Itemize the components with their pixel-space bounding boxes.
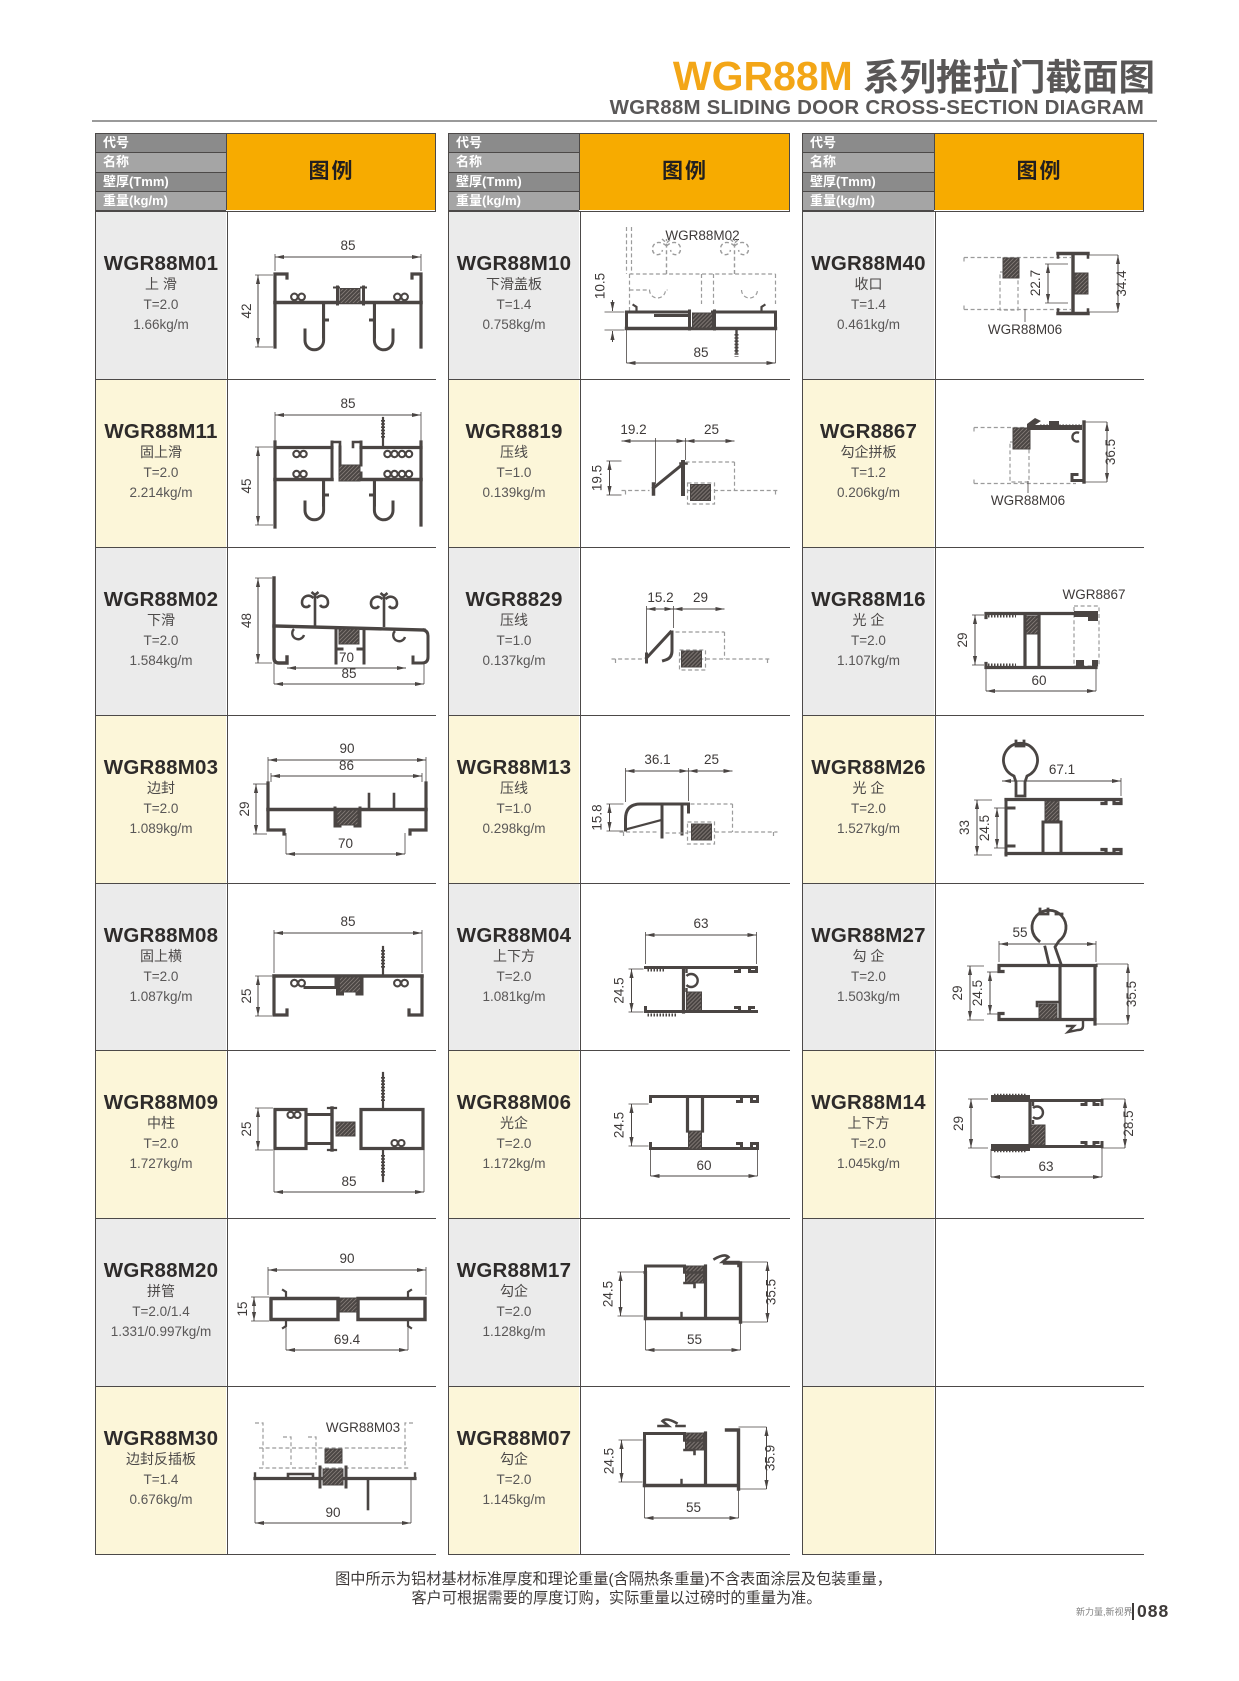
svg-text:15.8: 15.8: [590, 804, 605, 830]
svg-text:33: 33: [957, 820, 972, 835]
svg-text:WGR8867: WGR8867: [1062, 587, 1125, 602]
svg-text:48: 48: [239, 613, 254, 628]
svg-text:24.5: 24.5: [970, 979, 985, 1005]
svg-text:55: 55: [1012, 925, 1027, 940]
svg-text:90: 90: [325, 1505, 340, 1520]
svg-text:25: 25: [239, 988, 254, 1003]
svg-text:24.5: 24.5: [601, 1281, 616, 1307]
svg-text:19.5: 19.5: [590, 465, 605, 491]
svg-text:29: 29: [693, 590, 708, 605]
svg-text:55: 55: [686, 1500, 701, 1515]
svg-text:35.5: 35.5: [764, 1279, 779, 1305]
svg-text:85: 85: [341, 666, 356, 681]
svg-text:WGR88M02: WGR88M02: [665, 228, 739, 243]
svg-text:24.5: 24.5: [612, 1112, 627, 1138]
svg-text:36.1: 36.1: [644, 752, 670, 767]
svg-text:42: 42: [239, 303, 254, 318]
svg-text:28.5: 28.5: [1121, 1111, 1136, 1137]
svg-text:85: 85: [340, 914, 355, 929]
svg-text:63: 63: [1038, 1159, 1053, 1174]
svg-text:WGR88M06: WGR88M06: [988, 322, 1062, 337]
svg-text:24.5: 24.5: [612, 977, 627, 1003]
svg-text:34.4: 34.4: [1114, 270, 1129, 297]
svg-text:29: 29: [950, 985, 965, 1000]
svg-text:60: 60: [696, 1158, 711, 1173]
svg-text:29: 29: [951, 1116, 966, 1131]
svg-text:55: 55: [687, 1332, 702, 1347]
svg-text:10.5: 10.5: [593, 273, 608, 299]
svg-text:25: 25: [704, 752, 719, 767]
svg-text:85: 85: [341, 1174, 356, 1189]
svg-text:63: 63: [693, 916, 708, 931]
svg-text:29: 29: [237, 801, 252, 816]
svg-text:25: 25: [704, 422, 719, 437]
svg-text:69.4: 69.4: [334, 1332, 361, 1347]
svg-text:85: 85: [693, 345, 708, 360]
svg-text:70: 70: [339, 650, 354, 665]
svg-text:67.1: 67.1: [1049, 762, 1075, 777]
svg-text:36.5: 36.5: [1103, 439, 1118, 465]
svg-text:90: 90: [339, 741, 354, 756]
svg-text:WGR88M03: WGR88M03: [326, 1420, 400, 1435]
svg-text:25: 25: [239, 1122, 254, 1137]
svg-text:15: 15: [235, 1302, 250, 1317]
svg-text:24.5: 24.5: [602, 1448, 617, 1474]
svg-text:60: 60: [1031, 673, 1046, 688]
svg-text:85: 85: [340, 396, 355, 411]
svg-text:45: 45: [239, 478, 254, 493]
svg-text:15.2: 15.2: [647, 590, 673, 605]
svg-text:35.9: 35.9: [763, 1445, 778, 1471]
svg-text:86: 86: [339, 758, 354, 773]
svg-text:29: 29: [955, 632, 970, 647]
svg-text:22.7: 22.7: [1028, 270, 1043, 296]
svg-text:90: 90: [339, 1251, 354, 1266]
svg-text:70: 70: [338, 836, 353, 851]
svg-text:85: 85: [340, 238, 355, 253]
svg-text:WGR88M06: WGR88M06: [991, 493, 1065, 508]
svg-text:35.5: 35.5: [1124, 980, 1139, 1006]
svg-text:19.2: 19.2: [620, 422, 646, 437]
svg-text:24.5: 24.5: [977, 814, 992, 840]
